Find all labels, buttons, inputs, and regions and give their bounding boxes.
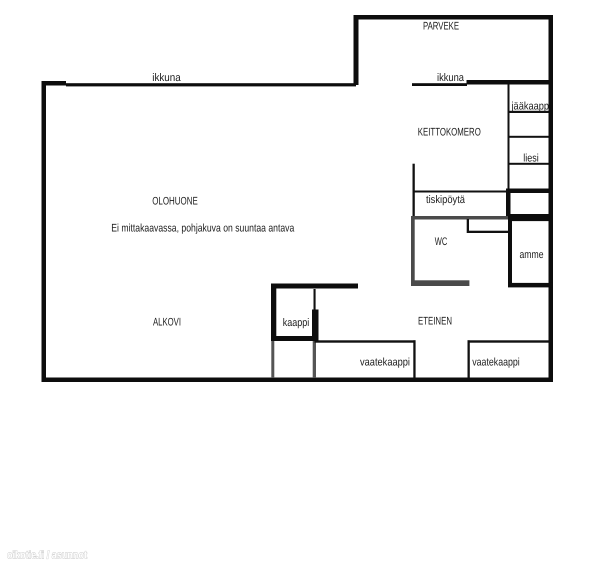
- svg-text:vaatekaappi: vaatekaappi: [472, 357, 520, 369]
- svg-text:amme: amme: [520, 249, 544, 261]
- svg-text:kaappi: kaappi: [283, 317, 310, 329]
- svg-text:PARVEKE: PARVEKE: [423, 21, 459, 33]
- svg-text:vaatekaappi: vaatekaappi: [360, 357, 410, 369]
- svg-text:ETEINEN: ETEINEN: [418, 316, 452, 328]
- svg-text:ikkuna: ikkuna: [437, 72, 465, 84]
- svg-text:jääkaapp: jääkaapp: [511, 101, 549, 113]
- svg-text:liesi: liesi: [523, 153, 539, 165]
- svg-text:WC: WC: [435, 236, 448, 248]
- svg-text:KEITTOKOMERO: KEITTOKOMERO: [418, 127, 481, 139]
- svg-text:ikkuna: ikkuna: [152, 72, 181, 84]
- svg-text:oikotie.fi / asunnot: oikotie.fi / asunnot: [7, 550, 87, 562]
- svg-text:tiskipöytä: tiskipöytä: [426, 194, 466, 206]
- svg-text:Ei mittakaavassa, pohjakuva on: Ei mittakaavassa, pohjakuva on suuntaa a…: [111, 223, 295, 235]
- svg-text:ALKOVI: ALKOVI: [153, 317, 181, 329]
- svg-text:OLOHUONE: OLOHUONE: [152, 196, 198, 208]
